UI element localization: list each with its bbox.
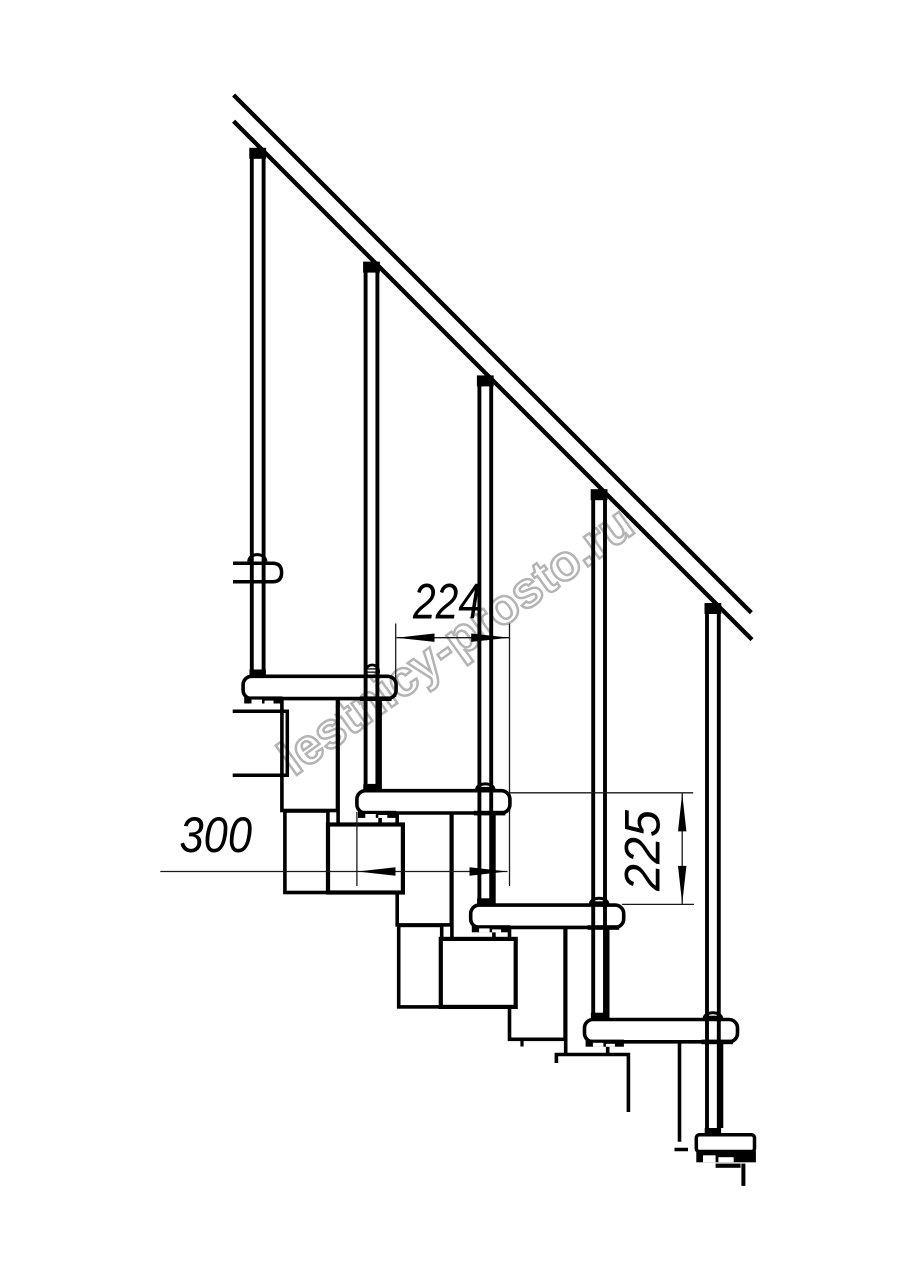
svg-text:225: 225 <box>615 810 671 892</box>
svg-text:300: 300 <box>180 807 253 863</box>
